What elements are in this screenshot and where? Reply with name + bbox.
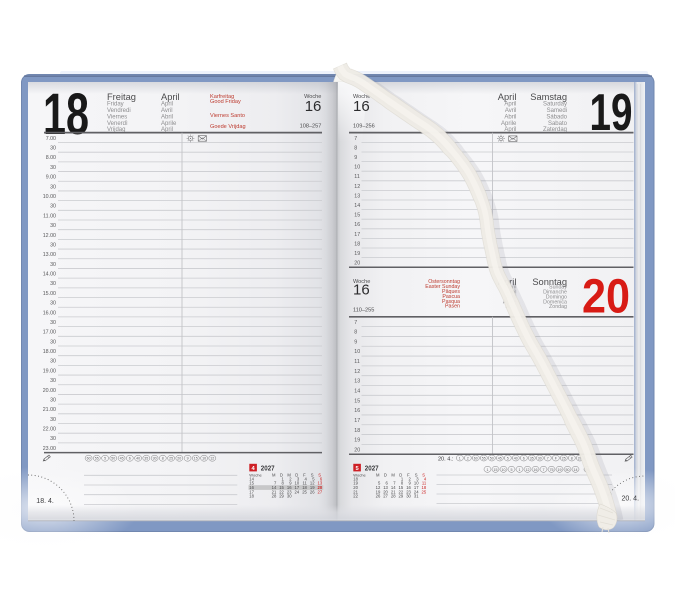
svg-text:7: 7 xyxy=(547,457,549,461)
svg-text:55: 55 xyxy=(95,457,99,461)
svg-text:5: 5 xyxy=(104,457,106,461)
svg-text:20. 4.:: 20. 4.: xyxy=(438,456,454,462)
svg-text:1: 1 xyxy=(519,468,521,472)
svg-text:Vendredi: Vendredi xyxy=(107,108,131,114)
svg-text:60: 60 xyxy=(87,457,91,461)
svg-text:19.00: 19.00 xyxy=(43,368,56,374)
svg-text:40: 40 xyxy=(514,457,518,461)
svg-text:27: 27 xyxy=(318,489,323,494)
svg-text:Abril: Abril xyxy=(161,114,173,120)
svg-text:16: 16 xyxy=(354,222,360,228)
svg-text:22: 22 xyxy=(353,494,358,499)
svg-text:7: 7 xyxy=(543,468,545,472)
svg-text:12: 12 xyxy=(354,184,360,190)
svg-text:30: 30 xyxy=(50,359,56,365)
svg-text:17.00: 17.00 xyxy=(43,330,56,336)
svg-text:2027: 2027 xyxy=(261,465,275,472)
svg-text:16: 16 xyxy=(305,98,322,115)
svg-text:11: 11 xyxy=(354,174,360,180)
svg-text:30: 30 xyxy=(50,146,56,152)
svg-text:20: 20 xyxy=(354,447,360,453)
svg-text:20: 20 xyxy=(582,271,630,324)
svg-text:5: 5 xyxy=(511,468,513,472)
svg-text:April: April xyxy=(504,102,516,108)
svg-text:8: 8 xyxy=(354,145,357,151)
svg-text:5: 5 xyxy=(507,457,509,461)
svg-text:Venerdì: Venerdì xyxy=(107,121,128,127)
svg-text:12.00: 12.00 xyxy=(43,233,56,239)
svg-text:11: 11 xyxy=(354,359,360,365)
svg-text:25: 25 xyxy=(422,489,427,494)
svg-text:31: 31 xyxy=(414,494,419,499)
svg-text:16: 16 xyxy=(353,98,370,115)
svg-text:18. 4.: 18. 4. xyxy=(36,498,54,505)
svg-text:16.00: 16.00 xyxy=(43,310,56,316)
svg-text:M: M xyxy=(376,472,380,477)
svg-text:Sabato: Sabato xyxy=(548,121,568,127)
svg-text:12: 12 xyxy=(210,457,214,461)
svg-text:Aprile: Aprile xyxy=(501,121,517,127)
svg-text:Abril: Abril xyxy=(504,114,516,120)
svg-text:25: 25 xyxy=(562,457,566,461)
svg-text:9: 9 xyxy=(354,339,357,345)
svg-text:2027: 2027 xyxy=(365,465,379,472)
svg-text:14.00: 14.00 xyxy=(43,272,56,278)
svg-text:10: 10 xyxy=(502,468,506,472)
svg-text:28: 28 xyxy=(391,494,396,499)
svg-text:50: 50 xyxy=(111,457,115,461)
svg-text:30: 30 xyxy=(50,436,56,442)
svg-text:16: 16 xyxy=(353,282,370,299)
svg-text:18: 18 xyxy=(354,241,360,247)
svg-text:6: 6 xyxy=(523,457,525,461)
svg-text:Aprile: Aprile xyxy=(161,121,177,127)
svg-text:30: 30 xyxy=(50,262,56,268)
svg-text:26: 26 xyxy=(376,494,381,499)
svg-text:50: 50 xyxy=(566,468,570,472)
svg-text:30: 30 xyxy=(50,223,56,229)
svg-text:25: 25 xyxy=(169,457,173,461)
svg-text:55: 55 xyxy=(482,457,486,461)
svg-text:20.00: 20.00 xyxy=(43,388,56,394)
svg-text:Good Friday: Good Friday xyxy=(210,99,241,105)
svg-text:Avril: Avril xyxy=(161,108,173,114)
svg-text:8: 8 xyxy=(571,457,573,461)
svg-text:30: 30 xyxy=(50,301,56,307)
svg-text:16: 16 xyxy=(534,468,538,472)
svg-text:8: 8 xyxy=(162,457,164,461)
svg-text:27: 27 xyxy=(383,494,388,499)
svg-text:15: 15 xyxy=(494,468,498,472)
svg-text:Saturday: Saturday xyxy=(543,102,567,108)
svg-text:30: 30 xyxy=(50,184,56,190)
svg-text:6: 6 xyxy=(129,457,131,461)
svg-text:109–256: 109–256 xyxy=(353,123,375,129)
svg-text:29: 29 xyxy=(399,494,404,499)
svg-text:14: 14 xyxy=(574,468,578,472)
svg-text:7.00: 7.00 xyxy=(46,136,56,142)
svg-text:9.00: 9.00 xyxy=(46,175,56,181)
svg-text:35: 35 xyxy=(144,457,148,461)
svg-text:10: 10 xyxy=(354,349,360,355)
svg-text:15: 15 xyxy=(194,457,198,461)
svg-text:13: 13 xyxy=(354,379,360,385)
svg-text:20: 20 xyxy=(354,261,360,267)
svg-text:Viernes Santo: Viernes Santo xyxy=(210,113,245,119)
svg-text:30: 30 xyxy=(50,320,56,326)
svg-text:45: 45 xyxy=(498,457,502,461)
svg-text:22.00: 22.00 xyxy=(43,427,56,433)
svg-text:17: 17 xyxy=(354,418,360,424)
svg-text:Sábado: Sábado xyxy=(546,114,567,120)
svg-text:1: 1 xyxy=(459,457,461,461)
svg-text:12: 12 xyxy=(354,369,360,375)
svg-text:D: D xyxy=(384,472,387,477)
svg-text:18: 18 xyxy=(249,494,254,499)
svg-text:30: 30 xyxy=(50,417,56,423)
svg-text:30: 30 xyxy=(50,281,56,287)
svg-text:30: 30 xyxy=(287,494,292,499)
svg-text:9: 9 xyxy=(187,457,189,461)
svg-text:M: M xyxy=(391,472,395,477)
svg-text:26: 26 xyxy=(310,489,315,494)
svg-text:30: 30 xyxy=(50,242,56,248)
svg-text:M: M xyxy=(272,472,276,477)
svg-text:Pasen: Pasen xyxy=(445,304,460,310)
svg-text:30: 30 xyxy=(50,165,56,171)
svg-text:50: 50 xyxy=(490,457,494,461)
svg-text:23.00: 23.00 xyxy=(43,446,56,452)
svg-text:45: 45 xyxy=(120,457,124,461)
svg-text:30: 30 xyxy=(406,494,411,499)
svg-text:24: 24 xyxy=(295,489,300,494)
svg-text:19: 19 xyxy=(354,251,360,257)
svg-text:19: 19 xyxy=(558,468,562,472)
svg-text:60: 60 xyxy=(474,457,478,461)
svg-text:20: 20 xyxy=(177,457,181,461)
svg-text:25: 25 xyxy=(302,489,307,494)
svg-text:40: 40 xyxy=(136,457,140,461)
svg-text:10.00: 10.00 xyxy=(43,194,56,200)
svg-text:30: 30 xyxy=(50,397,56,403)
svg-text:14: 14 xyxy=(354,388,360,394)
svg-text:Samedi: Samedi xyxy=(547,108,567,114)
svg-text:30: 30 xyxy=(50,378,56,384)
svg-text:35: 35 xyxy=(530,457,534,461)
svg-text:1: 1 xyxy=(487,468,489,472)
svg-text:9: 9 xyxy=(354,155,357,161)
svg-text:30: 30 xyxy=(50,339,56,345)
svg-text:15: 15 xyxy=(354,213,360,219)
svg-text:20. 4.: 20. 4. xyxy=(622,496,640,503)
svg-text:Friday: Friday xyxy=(107,102,124,108)
svg-text:110–255: 110–255 xyxy=(353,308,374,314)
svg-text:13: 13 xyxy=(354,193,360,199)
svg-text:14: 14 xyxy=(354,203,360,209)
svg-text:10: 10 xyxy=(354,165,360,171)
svg-text:8.00: 8.00 xyxy=(46,155,56,161)
svg-text:Avril: Avril xyxy=(505,108,517,114)
svg-text:30: 30 xyxy=(50,204,56,210)
svg-text:13.00: 13.00 xyxy=(43,252,56,258)
svg-text:7: 7 xyxy=(354,136,357,142)
svg-text:28: 28 xyxy=(272,494,277,499)
svg-text:15.00: 15.00 xyxy=(43,291,56,297)
svg-text:8: 8 xyxy=(354,330,357,336)
svg-text:Viernes: Viernes xyxy=(107,114,127,120)
svg-text:16: 16 xyxy=(354,408,360,414)
svg-text:10: 10 xyxy=(202,457,206,461)
svg-text:12: 12 xyxy=(526,468,530,472)
svg-text:15: 15 xyxy=(354,398,360,404)
svg-text:April: April xyxy=(161,102,173,108)
svg-text:18.00: 18.00 xyxy=(43,349,56,355)
svg-text:Goede Vrijdag: Goede Vrijdag xyxy=(210,124,246,130)
svg-text:2: 2 xyxy=(467,457,469,461)
svg-text:7: 7 xyxy=(354,320,357,326)
svg-text:21.00: 21.00 xyxy=(43,407,56,413)
svg-text:11.00: 11.00 xyxy=(43,213,56,219)
svg-text:Zondag: Zondag xyxy=(549,304,567,310)
svg-text:19: 19 xyxy=(354,438,360,444)
svg-text:30: 30 xyxy=(153,457,157,461)
svg-text:17: 17 xyxy=(354,232,360,238)
svg-text:108–257: 108–257 xyxy=(300,123,322,129)
svg-text:29: 29 xyxy=(279,494,284,499)
svg-text:30: 30 xyxy=(538,457,542,461)
svg-text:75: 75 xyxy=(550,468,554,472)
svg-text:18: 18 xyxy=(354,428,360,434)
